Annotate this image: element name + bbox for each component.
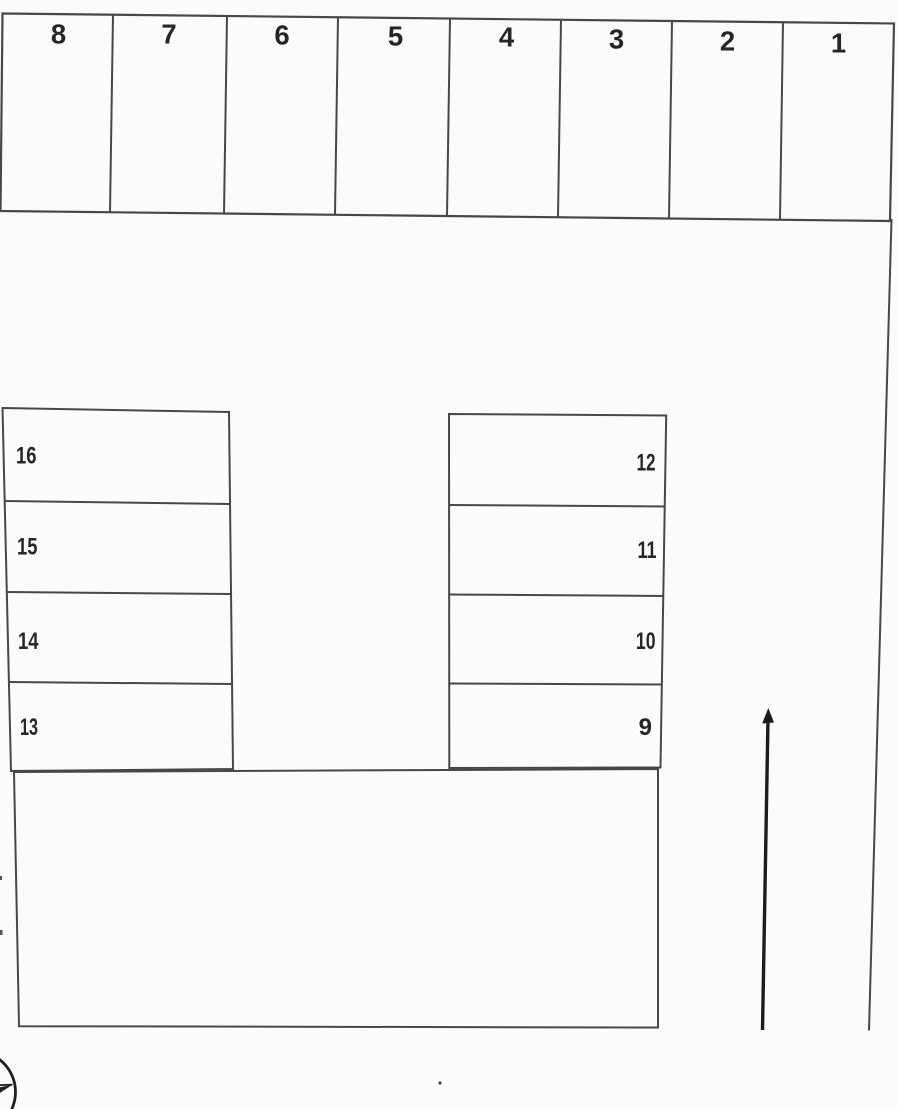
svg-text:12: 12 [637,450,656,477]
svg-text:16: 16 [16,443,37,470]
svg-text:15: 15 [17,534,38,561]
svg-text:7: 7 [161,19,176,50]
svg-text:13: 13 [20,714,38,741]
svg-text:6: 6 [274,20,289,51]
svg-text:1: 1 [831,28,846,59]
svg-text:8: 8 [51,19,66,50]
svg-text:9: 9 [639,714,652,741]
svg-text:4: 4 [499,22,515,53]
svg-text:14: 14 [18,628,39,655]
svg-text:3: 3 [609,24,624,55]
svg-text:10: 10 [636,628,656,655]
svg-text:11: 11 [638,537,657,564]
svg-text:2: 2 [720,26,735,57]
svg-text:5: 5 [388,21,403,52]
